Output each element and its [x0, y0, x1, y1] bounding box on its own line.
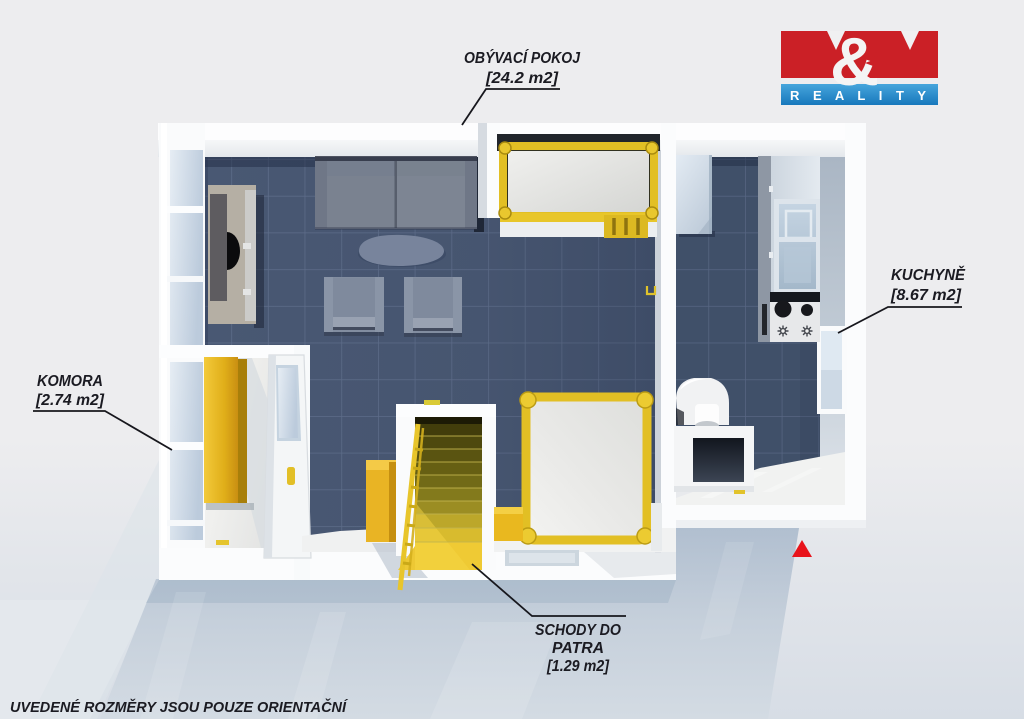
svg-text:OBÝVACÍ POKOJ: OBÝVACÍ POKOJ	[464, 48, 581, 67]
svg-text:SCHODY DO: SCHODY DO	[535, 622, 621, 639]
svg-text:KUCHYNĚ: KUCHYNĚ	[891, 266, 966, 284]
svg-text:[2.74 m2]: [2.74 m2]	[35, 392, 105, 409]
svg-text:[1.29 m2]: [1.29 m2]	[546, 658, 610, 675]
svg-text:UVEDENÉ ROZMĚRY JSOU POUZE ORI: UVEDENÉ ROZMĚRY JSOU POUZE ORIENTAČNÍ	[10, 698, 349, 716]
svg-text:[24.2 m2]: [24.2 m2]	[485, 70, 559, 87]
svg-text:[8.67 m2]: [8.67 m2]	[890, 287, 962, 304]
svg-text:KOMORA: KOMORA	[37, 373, 103, 390]
svg-text:PATRA: PATRA	[552, 640, 604, 657]
